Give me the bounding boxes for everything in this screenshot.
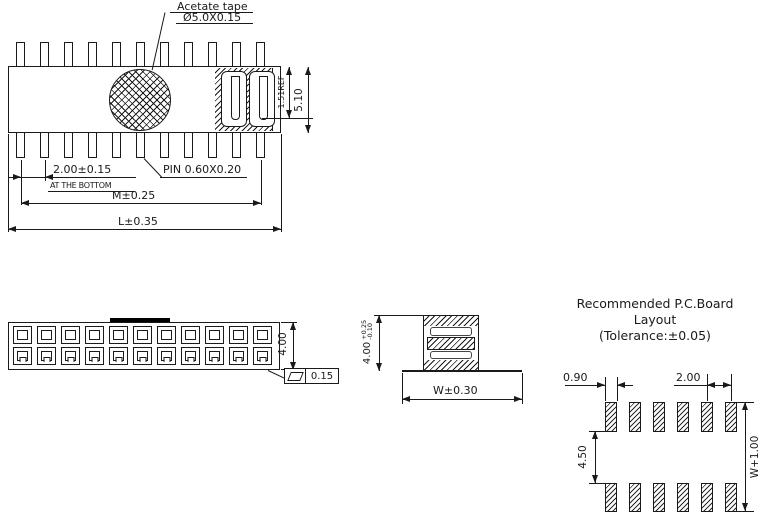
dim-line [21,203,261,204]
pin-top [64,42,73,68]
extension-line [281,134,282,232]
hole [37,326,56,344]
side-contact-outline [430,327,472,336]
hole-inner [65,351,76,361]
arrowhead [723,382,731,388]
dim-line [308,67,309,133]
hole-inner [233,351,244,361]
arrowhead [617,382,625,388]
side-dim-height-base: 4.00 [362,342,373,364]
hole-inner [257,351,268,361]
hole-inner [137,330,148,340]
hole [13,347,32,365]
pin-bottom [88,131,97,158]
dim-line [8,229,281,230]
extension-line [262,118,313,119]
hole [109,347,128,365]
arrowhead [273,226,281,232]
pcb-pad-top [605,402,617,432]
hole [205,347,224,365]
flatness-symbol-cell [284,368,306,384]
arrowhead [286,67,292,75]
dim-line [8,177,136,178]
technical-drawing-canvas: Acetate tape Ø5.0X0.15 1.51REF 5.10 2.00… [0,0,768,522]
hole [205,326,224,344]
pcb-title-line1: Recommended P.C.Board [540,296,768,312]
pcb-dim-pitch: 2.00 [676,372,701,384]
pin-bottom [160,131,169,158]
hole [253,347,272,365]
pin-bottom [136,131,145,158]
pcb-pad-bottom [629,483,641,512]
hole [181,347,200,365]
hole [85,347,104,365]
hole [229,326,248,344]
front-dim-height: 4.00 [277,329,289,359]
tape-size-label: Ø5.0X0.15 [183,12,241,24]
hole-contact [163,357,170,362]
side-dim-height: 4.00 +0.25 -0.10 [359,315,375,369]
arrowhead [45,174,53,180]
pcb-dim-overall: W+1.00 [749,431,761,483]
pcb-title-line2: Layout [540,312,768,328]
hole-contact [139,357,146,362]
pin-top [208,42,217,68]
arrowhead [305,125,311,133]
hole-inner [41,330,52,340]
hole-contact [235,357,242,362]
hole-inner [185,330,196,340]
dim-line [402,399,522,400]
arrowhead [305,67,311,75]
extension-line [605,377,606,401]
hole-inner [41,351,52,361]
dim-pitch: 2.00±0.15 [53,164,111,176]
hole-contact [19,357,26,362]
pcb-dim-row-gap: 4.50 [577,442,589,472]
hole-inner [113,330,124,340]
hole [181,326,200,344]
hole [253,326,272,344]
hole [133,347,152,365]
pcb-title-line3: (Tolerance:±0.05) [540,328,768,344]
pcb-pad-bottom [701,483,713,512]
hole [85,326,104,344]
flatness-tolerance-cell: 0.15 [305,368,339,384]
pin-top [232,42,241,68]
pin-bottom [208,131,217,158]
side-dim-width: W±0.30 [433,385,478,397]
extension-line [8,134,9,232]
hole [157,347,176,365]
side-hatch-middle [427,337,475,350]
arrowhead [742,503,748,511]
side-hatch-bottom [424,360,478,370]
arrowhead [21,200,29,206]
pin-bottom [64,131,73,158]
hole-inner [89,330,100,340]
hole-inner [17,351,28,361]
arrowhead [8,226,16,232]
pin-bottom [16,131,25,158]
side-hatch-top [424,316,478,326]
acetate-tape-circle [109,69,171,131]
pcb-pad-top [701,402,713,432]
flatness-icon [287,372,304,381]
arrowhead [597,382,605,388]
extension-line [522,373,523,404]
arrowhead [707,382,715,388]
pin-top [88,42,97,68]
leader-underline [160,177,247,178]
hole-inner [137,351,148,361]
arrowhead [253,200,261,206]
pcb-pad-top [725,402,737,432]
hole-contact [187,357,194,362]
dim-body-height: 5.10 [293,85,305,115]
hole-inner [17,330,28,340]
tape-strip [110,318,170,322]
side-contact-outline [430,351,472,359]
leader-line [144,158,163,178]
hole-contact [115,357,122,362]
dim-m: M±0.25 [112,190,155,202]
arrowhead [592,475,598,483]
contact-pin [259,76,268,120]
pin-top [160,42,169,68]
pin-bottom [184,131,193,158]
dim-pitch-note: AT THE BOTTOM [50,181,111,190]
arrowhead [592,431,598,439]
hole-inner [89,351,100,361]
hole [61,326,80,344]
extension-line [261,160,262,205]
pin-bottom [112,131,121,158]
hole-contact [259,357,266,362]
arrowhead [376,363,382,371]
pcb-pad-bottom [605,483,617,512]
side-dim-height-tolerance: +0.25 -0.10 [361,320,374,340]
hole [61,347,80,365]
hole [13,326,32,344]
hole-inner [65,330,76,340]
dim-ref-height: 1.51REF [276,70,286,114]
pcb-pad-bottom [653,483,665,512]
hole-inner [209,351,220,361]
pcb-pad-bottom [677,483,689,512]
leader-line [268,370,286,379]
pin-bottom [232,131,241,158]
pin-top [256,42,265,68]
pcb-dim-pad-width: 0.90 [563,372,588,384]
contact-pin [231,76,240,120]
arrowhead [402,396,410,402]
pin-top [16,42,25,68]
extension-line [589,483,607,484]
hole [229,347,248,365]
hole-contact [211,357,218,362]
arrowhead [376,315,382,323]
pin-top [136,42,145,68]
arrowhead [286,110,292,118]
hole-contact [91,357,98,362]
pcb-layout-title: Recommended P.C.Board Layout (Tolerance:… [540,296,768,344]
hole-inner [185,351,196,361]
hole-inner [113,351,124,361]
arrowhead [742,402,748,410]
arrowhead [290,322,296,330]
arrowhead [514,396,522,402]
dim-line [674,385,707,386]
dim-line [745,402,746,512]
hole-inner [161,330,172,340]
hole-inner [257,330,268,340]
pcb-pad-top [629,402,641,432]
extension-line [617,377,618,401]
pcb-pad-top [653,402,665,432]
pin-top [40,42,49,68]
pin-bottom [256,131,265,158]
pin-bottom [40,131,49,158]
hole [109,326,128,344]
hole-inner [233,330,244,340]
dim-l: L±0.35 [118,216,158,228]
hole-inner [161,351,172,361]
hole-contact [43,357,50,362]
pcb-pad-top [677,402,689,432]
hole-inner [209,330,220,340]
extension-line [731,374,732,401]
arrowhead [13,174,21,180]
pin-top [184,42,193,68]
pin-top [112,42,121,68]
hole [133,326,152,344]
extension-line [21,160,22,205]
pcb-pad-bottom [725,483,737,512]
hole [157,326,176,344]
hole [37,347,56,365]
pin-size-label: PIN 0.60X0.20 [163,164,241,176]
hole-contact [67,357,74,362]
